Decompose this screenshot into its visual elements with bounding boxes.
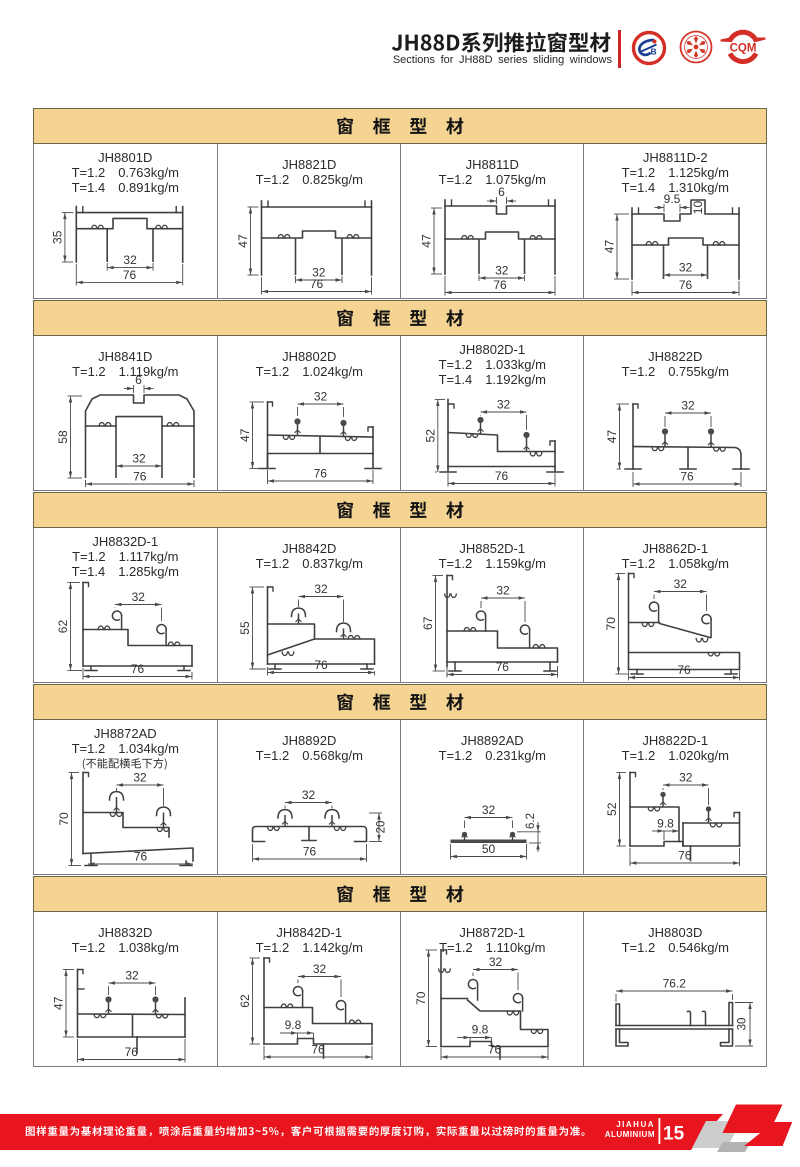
svg-text:6: 6 [135,373,142,387]
svg-text:76: 76 [131,662,145,676]
svg-text:32: 32 [679,261,693,275]
svg-text:76.2: 76.2 [663,977,687,991]
svg-text:32: 32 [132,452,146,466]
svg-text:32: 32 [133,771,147,785]
svg-text:47: 47 [420,234,434,248]
svg-text:20: 20 [376,821,388,834]
svg-text:47: 47 [236,234,250,248]
svg-text:76: 76 [314,467,328,481]
svg-text:76: 76 [311,1043,325,1057]
svg-text:ALUMINIUM: ALUMINIUM [605,1130,655,1139]
svg-text:47: 47 [52,996,66,1010]
svg-text:76: 76 [133,470,147,484]
svg-text:67: 67 [421,616,435,630]
svg-text:76: 76 [493,278,507,292]
svg-text:32: 32 [314,390,328,404]
svg-text:32: 32 [123,253,137,267]
svg-text:76: 76 [125,1045,139,1059]
svg-text:32: 32 [489,955,503,969]
svg-text:76: 76 [495,469,509,483]
svg-text:6: 6 [498,185,505,199]
svg-text:32: 32 [495,264,509,278]
svg-text:10: 10 [691,201,705,215]
svg-text:52: 52 [605,802,619,816]
svg-text:76: 76 [678,849,692,863]
svg-text:9.8: 9.8 [285,1018,302,1032]
svg-text:55: 55 [238,621,252,635]
svg-text:76: 76 [134,850,148,864]
svg-text:62: 62 [238,994,252,1008]
svg-text:CQM: CQM [730,43,757,55]
svg-text:32: 32 [313,962,327,976]
svg-text:32: 32 [314,582,328,596]
svg-text:6.2: 6.2 [525,813,537,829]
svg-text:32: 32 [497,398,511,412]
svg-text:32: 32 [125,969,139,983]
svg-text:32: 32 [679,771,693,785]
svg-text:62: 62 [56,620,70,634]
svg-text:76: 76 [123,268,137,282]
svg-text:32: 32 [674,577,688,591]
svg-text:JIAHUA: JIAHUA [616,1120,655,1129]
svg-text:58: 58 [56,430,70,444]
svg-text:52: 52 [423,429,437,443]
svg-text:70: 70 [604,617,618,631]
svg-text:30: 30 [737,1018,749,1031]
svg-text:76: 76 [496,660,510,674]
svg-text:35: 35 [50,230,64,244]
svg-text:47: 47 [603,240,617,254]
svg-text:76: 76 [303,845,317,859]
svg-text:76: 76 [679,278,693,292]
svg-text:9.8: 9.8 [657,817,674,831]
svg-text:47: 47 [238,428,252,442]
svg-text:32: 32 [496,584,510,598]
svg-text:50: 50 [482,842,496,856]
svg-text:76: 76 [680,470,694,484]
svg-text:32: 32 [482,803,496,817]
svg-text:76: 76 [310,277,324,291]
svg-text:76: 76 [488,1043,502,1057]
svg-text:B: B [651,47,657,57]
svg-text:9.8: 9.8 [472,1023,489,1037]
svg-text:32: 32 [681,399,695,413]
svg-text:32: 32 [132,590,146,604]
svg-text:9.5: 9.5 [664,192,681,206]
svg-text:70: 70 [414,991,428,1005]
svg-text:76: 76 [677,663,691,677]
svg-text:15: 15 [663,1124,685,1145]
svg-text:70: 70 [57,812,71,826]
svg-text:32: 32 [302,788,316,802]
svg-text:47: 47 [605,430,619,444]
svg-text:76: 76 [314,658,328,672]
